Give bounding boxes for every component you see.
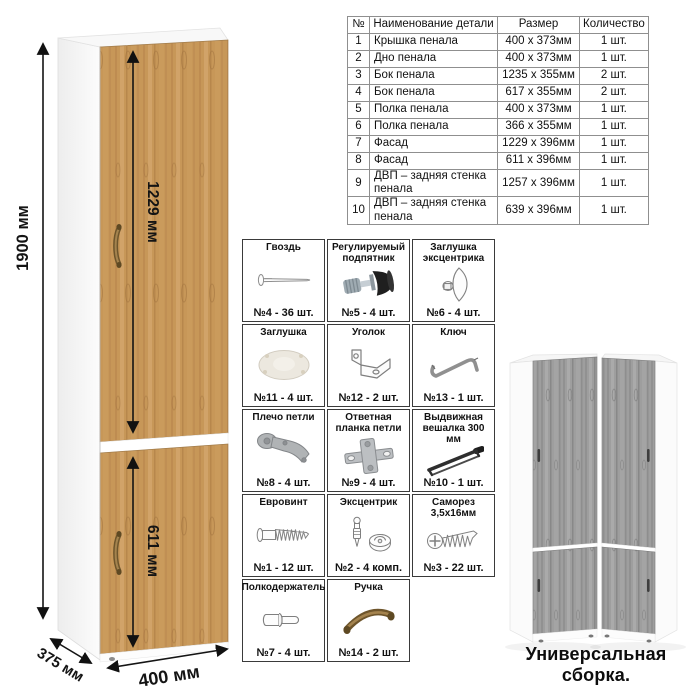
gray-cabinet-left (510, 354, 597, 643)
hardware-item-count: №10 - 1 шт. (423, 477, 483, 490)
universal-assembly-illustration (495, 350, 695, 660)
cabinet-illustration: 1900 мм 1229 мм 611 мм 375 мм 400 мм (0, 0, 240, 700)
cabinet-side-panel (58, 38, 100, 660)
gray-handle-icon (647, 579, 650, 592)
parts-table: №Наименование деталиРазмерКоличество 1Кр… (347, 16, 649, 225)
table-cell: 5 (348, 102, 370, 119)
hardware-item-count: №8 - 4 шт. (257, 477, 311, 490)
hardware-item: Заглушка эксцентрика№6 - 4 шт. (412, 239, 495, 322)
hardware-item: Саморез 3,5х16мм№3 - 22 шт. (412, 494, 495, 577)
parts-header-cell: Наименование детали (370, 17, 498, 34)
table-cell: 1 шт. (580, 136, 649, 153)
table-cell: ДВП – задняя стенка пенала (370, 197, 498, 224)
gray-lower-door (533, 547, 597, 634)
table-cell: 1 шт. (580, 102, 649, 119)
table-row: 3Бок пенала1235 x 355мм2 шт. (348, 68, 649, 85)
hardware-item: Регулируемый подпятник№5 - 4 шт. (327, 239, 410, 322)
shelf-pin-icon (258, 593, 310, 647)
parts-header-cell: № (348, 17, 370, 34)
table-cell: Бок пенала (370, 85, 498, 102)
hinge-plate-icon (341, 434, 397, 477)
gray-cabinet-right (602, 354, 677, 643)
table-cell: 9 (348, 170, 370, 197)
cabinet-foot (109, 657, 115, 661)
hardware-item-count: №9 - 4 шт. (342, 477, 396, 490)
table-cell: 2 шт. (580, 68, 649, 85)
hardware-item: Уголок№12 - 2 шт. (327, 324, 410, 407)
upper-door-dimension-label: 1229 мм (144, 181, 161, 243)
confirmat-screw-icon (254, 508, 314, 562)
table-row: 10ДВП – задняя стенка пенала639 x 396мм1… (348, 197, 649, 224)
hardware-item-title: Заглушка (260, 327, 306, 338)
handle-icon (340, 593, 398, 647)
cam-lock-icon (341, 508, 397, 562)
hardware-item-title: Плечо петли (252, 412, 314, 423)
table-cell: 7 (348, 136, 370, 153)
hardware-item-count: №11 - 4 шт. (254, 392, 314, 405)
table-cell: 1 шт. (580, 170, 649, 197)
table-cell: Полка пенала (370, 102, 498, 119)
table-cell: 1235 x 355мм (498, 68, 580, 85)
table-row: 9ДВП – задняя стенка пенала1257 x 396мм1… (348, 170, 649, 197)
gray-handle-icon (538, 579, 541, 592)
lower-door-dimension-label: 611 мм (144, 525, 161, 577)
table-cell: 400 x 373мм (498, 51, 580, 68)
hardware-item-title: Выдвижная вешалка 300 мм (414, 412, 493, 446)
table-cell: ДВП – задняя стенка пенала (370, 170, 498, 197)
plug-icon (256, 338, 312, 392)
table-cell: Фасад (370, 153, 498, 170)
table-cell: 366 x 355мм (498, 119, 580, 136)
table-cell: 1257 x 396мм (498, 170, 580, 197)
table-row: 8Фасад611 x 396мм1 шт. (348, 153, 649, 170)
table-cell: Крышка пенала (370, 34, 498, 51)
hardware-item: Плечо петли№8 - 4 шт. (242, 409, 325, 492)
hardware-item-count: №13 - 1 шт. (423, 392, 483, 405)
hardware-item-count: №7 - 4 шт. (257, 647, 311, 660)
table-cell: 1229 x 396мм (498, 136, 580, 153)
table-cell: 400 x 373мм (498, 34, 580, 51)
parts-header-row: №Наименование деталиРазмерКоличество (348, 17, 649, 34)
hardware-item-title: Гвоздь (266, 242, 301, 253)
hardware-item: Ключ№13 - 1 шт. (412, 324, 495, 407)
table-cell: 639 x 396мм (498, 197, 580, 224)
table-cell: Бок пенала (370, 68, 498, 85)
table-cell: 617 x 355мм (498, 85, 580, 102)
table-row: 6Полка пенала366 x 355мм1 шт. (348, 119, 649, 136)
table-cell: 10 (348, 197, 370, 224)
cam-cap-icon (434, 264, 474, 307)
hardware-item-count: №4 - 36 шт. (253, 307, 313, 320)
screw-icon (426, 519, 482, 562)
hex-key-icon (426, 338, 482, 392)
hardware-item-title: Регулируемый подпятник (329, 242, 408, 264)
height-dimension-label: 1900 мм (14, 205, 32, 271)
hardware-grid: Гвоздь№4 - 36 шт.Регулируемый подпятник№… (242, 239, 495, 662)
adjustable-foot-icon (341, 264, 397, 307)
parts-table-container: №Наименование деталиРазмерКоличество 1Кр… (347, 16, 649, 225)
gray-handle-icon (647, 449, 650, 462)
table-cell: 1 шт. (580, 34, 649, 51)
table-cell: 1 шт. (580, 197, 649, 224)
hardware-item: Ручка№14 - 2 шт. (327, 579, 410, 662)
pullout-hanger-icon (424, 446, 484, 477)
hardware-item: Ответная планка петли№9 - 4 шт. (327, 409, 410, 492)
hardware-item-title: Заглушка эксцентрика (414, 242, 493, 264)
gray-handle-icon (538, 449, 541, 462)
table-cell: 4 (348, 85, 370, 102)
cabinet-lower-door (100, 444, 228, 654)
table-cell: 1 (348, 34, 370, 51)
parts-table-head: №Наименование деталиРазмерКоличество (348, 17, 649, 34)
hardware-item-title: Саморез 3,5х16мм (414, 497, 493, 519)
hardware-item-count: №5 - 4 шт. (342, 307, 396, 320)
table-cell: 2 шт. (580, 85, 649, 102)
table-row: 2Дно пенала400 x 373мм1 шт. (348, 51, 649, 68)
universal-assembly-caption: Универсальная сборка. (492, 644, 700, 686)
hardware-item-title: Ответная планка петли (329, 412, 408, 434)
hardware-item-count: №3 - 22 шт. (423, 562, 483, 575)
hardware-item-count: №2 - 4 комп. (335, 562, 402, 575)
table-cell: 1 шт. (580, 119, 649, 136)
cabinet-upper-door (100, 40, 228, 442)
hardware-item-title: Ключ (440, 327, 466, 338)
hardware-item-title: Ручка (354, 582, 383, 593)
table-cell: Полка пенала (370, 119, 498, 136)
table-cell: 2 (348, 51, 370, 68)
hardware-item: Полкодержатель№7 - 4 шт. (242, 579, 325, 662)
parts-header-cell: Размер (498, 17, 580, 34)
width-dimension-label: 400 мм (137, 661, 201, 690)
table-cell: 1 шт. (580, 51, 649, 68)
hardware-item: Заглушка№11 - 4 шт. (242, 324, 325, 407)
hardware-item-title: Эксцентрик (340, 497, 397, 508)
hardware-item-title: Евровинт (259, 497, 307, 508)
hardware-item-title: Полкодержатель (242, 582, 326, 593)
table-cell: Фасад (370, 136, 498, 153)
hardware-item: Гвоздь№4 - 36 шт. (242, 239, 325, 322)
table-cell: 611 x 396мм (498, 153, 580, 170)
parts-header-cell: Количество (580, 17, 649, 34)
corner-bracket-icon (342, 338, 396, 392)
table-cell: Дно пенала (370, 51, 498, 68)
hardware-item-count: №14 - 2 шт. (338, 647, 398, 660)
hardware-item: Выдвижная вешалка 300 мм№10 - 1 шт. (412, 409, 495, 492)
table-cell: 1 шт. (580, 153, 649, 170)
table-cell: 6 (348, 119, 370, 136)
table-row: 7Фасад1229 x 396мм1 шт. (348, 136, 649, 153)
hardware-item-title: Уголок (352, 327, 385, 338)
gray-upper-door (533, 357, 597, 548)
table-row: 5Полка пенала400 x 373мм1 шт. (348, 102, 649, 119)
hardware-item: Евровинт№1 - 12 шт. (242, 494, 325, 577)
hardware-item-count: №12 - 2 шт. (338, 392, 398, 405)
hardware-item-count: №1 - 12 шт. (253, 562, 313, 575)
depth-dimension-label: 375 мм (34, 645, 87, 686)
hinge-arm-icon (255, 423, 313, 477)
table-row: 1Крышка пенала400 x 373мм1 шт. (348, 34, 649, 51)
table-cell: 400 x 373мм (498, 102, 580, 119)
hardware-item: Эксцентрик№2 - 4 комп. (327, 494, 410, 577)
table-cell: 3 (348, 68, 370, 85)
parts-table-body: 1Крышка пенала400 x 373мм1 шт.2Дно пенал… (348, 34, 649, 225)
table-row: 4Бок пенала617 x 355мм2 шт. (348, 85, 649, 102)
hardware-item-count: №6 - 4 шт. (427, 307, 481, 320)
nail-icon (255, 253, 313, 307)
table-cell: 8 (348, 153, 370, 170)
